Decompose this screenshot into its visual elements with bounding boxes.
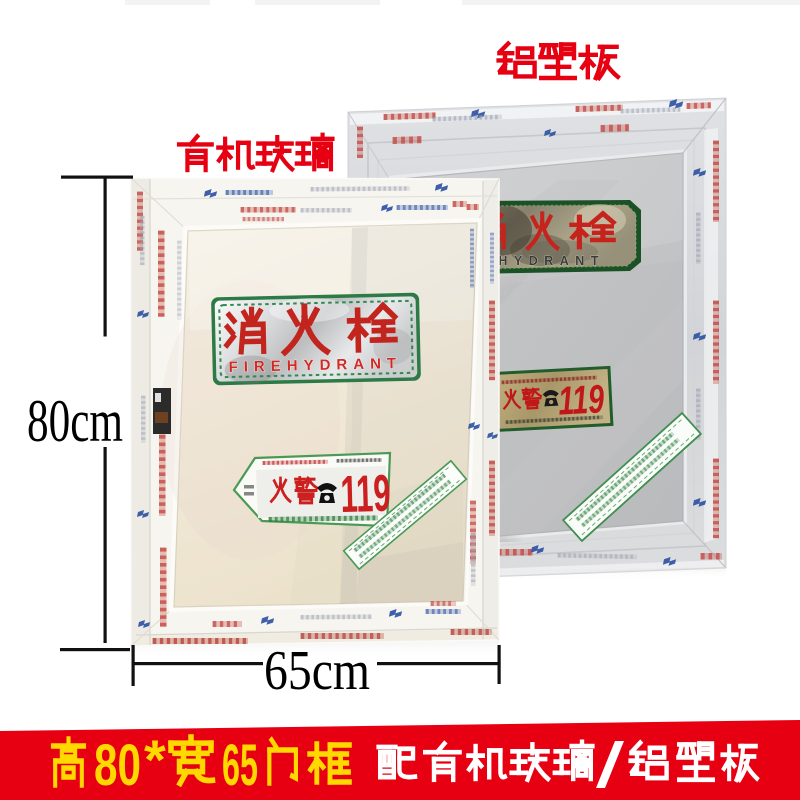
svg-text:*: * [144,728,166,791]
svg-text:65: 65 [222,733,258,798]
svg-text:119: 119 [340,465,392,524]
svg-text:80: 80 [94,733,141,798]
svg-text:65cm: 65cm [264,640,370,702]
svg-text:80cm: 80cm [27,388,123,454]
